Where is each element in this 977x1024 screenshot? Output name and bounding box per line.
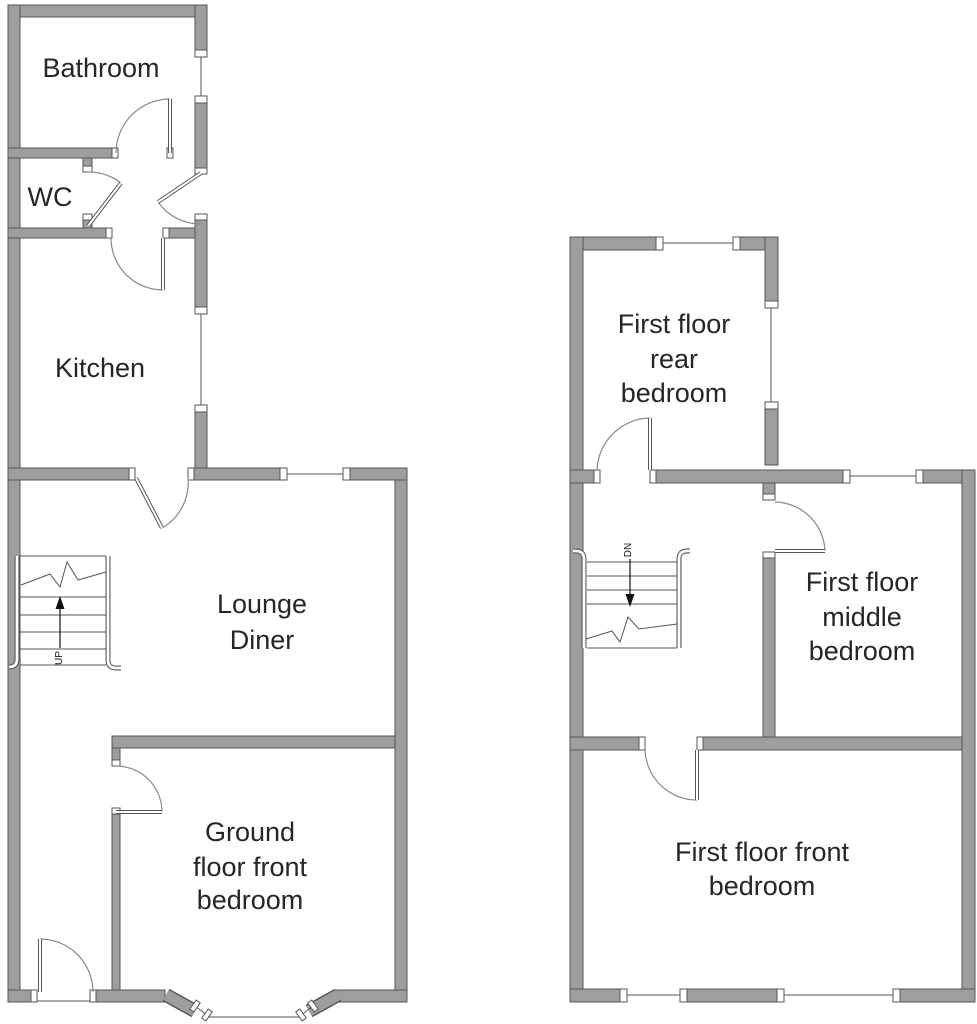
wall-segment bbox=[570, 737, 639, 750]
window-cap bbox=[680, 989, 687, 1002]
wall-segment bbox=[8, 148, 112, 158]
stairs-direction-label: DN bbox=[623, 543, 634, 557]
wall-segment bbox=[962, 470, 975, 1002]
floor-plan-canvas: UP Bathroom WC Kitchen Lounge Diner Grou… bbox=[0, 0, 977, 1024]
door-jamb bbox=[697, 737, 703, 750]
wall-segment bbox=[763, 552, 775, 737]
room-label-line: bedroom bbox=[709, 871, 816, 901]
door-arc-front-entrance bbox=[40, 939, 93, 992]
room-label-first-floor-middle-bedroom: First floor middle bedroom bbox=[806, 567, 919, 666]
wall-segment bbox=[195, 412, 207, 468]
window-cap bbox=[202, 1009, 213, 1021]
window-cap bbox=[195, 307, 207, 314]
room-label-ground-front-bedroom: Ground floor front bedroom bbox=[193, 817, 308, 915]
room-label-line: rear bbox=[650, 344, 698, 374]
window-cap bbox=[733, 237, 740, 250]
window-cap bbox=[656, 237, 663, 250]
window-cap bbox=[916, 470, 923, 483]
wall-segment bbox=[90, 990, 165, 1002]
window-cap bbox=[195, 96, 207, 103]
wall-segment bbox=[195, 5, 207, 50]
room-label-kitchen: Kitchen bbox=[55, 353, 145, 383]
room-label-line: First floor front bbox=[675, 837, 850, 867]
window-cap bbox=[843, 470, 850, 483]
wall-segment bbox=[765, 409, 778, 465]
room-label-line: bedroom bbox=[197, 885, 304, 915]
window-cap bbox=[893, 989, 900, 1002]
room-label-line: floor front bbox=[193, 852, 308, 882]
window-cap bbox=[765, 301, 778, 308]
wall-segment bbox=[697, 737, 962, 750]
door-arc-kitchen bbox=[111, 238, 163, 290]
door-arc-rear-bedroom bbox=[597, 418, 650, 470]
wall-segment bbox=[8, 5, 207, 17]
room-label-line: Ground bbox=[205, 817, 295, 847]
door-jamb bbox=[195, 214, 207, 220]
room-label-first-floor-rear-bedroom: First floor rear bedroom bbox=[618, 309, 731, 408]
wall-segment bbox=[900, 989, 975, 1002]
door-jamb bbox=[112, 760, 120, 766]
window-cap bbox=[195, 50, 207, 57]
room-label-first-floor-front-bedroom: First floor front bedroom bbox=[675, 837, 850, 901]
room-label-line: bedroom bbox=[621, 378, 728, 408]
floor-plan-page: UP Bathroom WC Kitchen Lounge Diner Grou… bbox=[0, 0, 977, 1024]
room-label-line: First floor bbox=[618, 309, 731, 339]
door-jamb bbox=[83, 214, 92, 220]
wall-segment bbox=[8, 468, 135, 480]
door-jamb bbox=[650, 470, 656, 483]
door-jamb bbox=[83, 166, 92, 172]
wall-segment bbox=[570, 989, 620, 1002]
wall-segment bbox=[350, 468, 407, 480]
window-cap bbox=[280, 468, 287, 480]
wall-segment bbox=[650, 470, 843, 483]
window-cap bbox=[765, 402, 778, 409]
door-leaf-side-entrance bbox=[158, 173, 201, 202]
down-arrow-head bbox=[626, 594, 635, 607]
wall-segment bbox=[335, 990, 407, 1002]
ground-floor-plan: UP Bathroom WC Kitchen Lounge Diner Grou… bbox=[8, 5, 407, 1021]
stair-rail bbox=[679, 551, 690, 648]
door-jamb bbox=[763, 552, 775, 558]
room-label-line: Diner bbox=[230, 625, 295, 655]
room-label-line: First floor bbox=[806, 567, 919, 597]
door-arc-wc bbox=[88, 172, 121, 183]
first-floor-stairs: DN bbox=[573, 543, 690, 648]
door-arc-gf-bedroom bbox=[116, 766, 162, 812]
door-arc-middle-bedroom bbox=[775, 502, 825, 551]
wall-segment bbox=[8, 228, 112, 238]
room-label-lounge-diner: Lounge Diner bbox=[217, 589, 307, 655]
door-jamb bbox=[31, 990, 37, 1002]
door-arc-ff-front-bedroom bbox=[645, 750, 697, 800]
door-leaf-wc bbox=[88, 183, 121, 226]
door-jamb bbox=[106, 228, 112, 238]
wall-segment bbox=[195, 103, 207, 168]
wall-segment bbox=[395, 480, 407, 1002]
door-jamb bbox=[639, 737, 645, 750]
wall-segment bbox=[112, 808, 120, 990]
room-label-line: middle bbox=[822, 602, 902, 632]
wall-segment bbox=[570, 237, 583, 1002]
door-jamb bbox=[163, 228, 169, 238]
room-label-line: bedroom bbox=[809, 636, 916, 666]
door-arc-lounge bbox=[162, 478, 188, 528]
door-jamb bbox=[112, 148, 118, 158]
ground-floor-labels: Bathroom WC Kitchen Lounge Diner Ground … bbox=[28, 53, 308, 915]
window-cap bbox=[620, 989, 627, 1002]
room-label-line: Lounge bbox=[217, 589, 307, 619]
window-cap bbox=[296, 1009, 307, 1021]
stair-rail bbox=[108, 556, 121, 668]
stair-break-line bbox=[586, 617, 677, 642]
up-arrow-head bbox=[56, 596, 65, 609]
wall-segment bbox=[195, 220, 207, 307]
wall-segment bbox=[765, 237, 778, 301]
room-label-wc: WC bbox=[28, 182, 73, 212]
door-jamb bbox=[763, 494, 775, 500]
stairs-direction-label: UP bbox=[54, 651, 65, 665]
door-jamb bbox=[129, 468, 135, 480]
stair-break-line bbox=[21, 562, 106, 587]
door-jamb bbox=[594, 470, 600, 483]
window-cap bbox=[343, 468, 350, 480]
wall-segment bbox=[112, 736, 395, 748]
wall-segment bbox=[188, 468, 280, 480]
wall-segment bbox=[687, 989, 777, 1002]
first-floor-plan: DN First floor rear bedroom First floor … bbox=[570, 237, 975, 1002]
room-label-bathroom: Bathroom bbox=[42, 53, 159, 83]
door-leaf-lounge bbox=[136, 478, 162, 528]
window-cap bbox=[777, 989, 784, 1002]
ground-floor-stairs: UP bbox=[9, 556, 121, 668]
window-cap bbox=[195, 405, 207, 412]
door-arc-bathroom bbox=[116, 99, 170, 153]
door-jamb bbox=[188, 468, 194, 480]
